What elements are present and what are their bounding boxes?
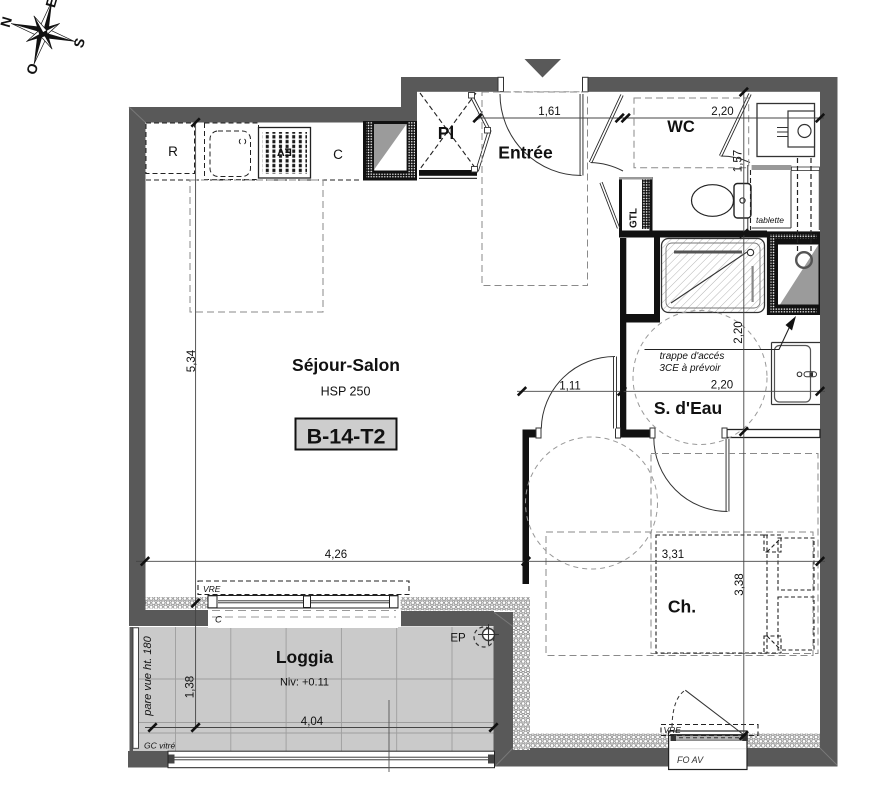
svg-text:VRE: VRE: [203, 584, 221, 594]
svg-text:FO AV: FO AV: [677, 755, 704, 765]
svg-text:4,04: 4,04: [301, 716, 324, 728]
svg-text:R: R: [168, 144, 178, 159]
svg-text:3,38: 3,38: [734, 573, 746, 595]
svg-text:2,20: 2,20: [711, 380, 733, 392]
svg-text:1,38: 1,38: [185, 676, 197, 698]
svg-text:2,20: 2,20: [711, 106, 733, 118]
svg-text:Ch.: Ch.: [668, 597, 696, 617]
svg-text:trappe d'accés: trappe d'accés: [660, 351, 725, 362]
svg-text:EV: EV: [277, 146, 292, 158]
svg-text:3CE à prévoir: 3CE à prévoir: [659, 363, 721, 374]
svg-text:WC: WC: [667, 118, 695, 136]
svg-text:Niv: +0.11: Niv: +0.11: [280, 677, 329, 689]
svg-text:HSP 250: HSP 250: [321, 385, 371, 399]
svg-text:Pl: Pl: [438, 123, 455, 143]
svg-text:GC vitré: GC vitré: [144, 741, 175, 751]
svg-text:1,11: 1,11: [559, 381, 581, 393]
svg-text:3,31: 3,31: [662, 549, 684, 561]
svg-text:C: C: [333, 147, 343, 162]
svg-text:2,20: 2,20: [733, 321, 745, 343]
svg-text:EP: EP: [450, 633, 466, 645]
svg-text:Séjour-Salon: Séjour-Salon: [292, 355, 400, 375]
svg-text:VRE: VRE: [664, 725, 682, 735]
svg-text:Loggia: Loggia: [276, 647, 334, 667]
svg-text:1,57: 1,57: [733, 150, 745, 172]
svg-text:Entrée: Entrée: [498, 143, 553, 163]
svg-text:4,26: 4,26: [325, 549, 347, 561]
svg-text:5,34: 5,34: [186, 349, 198, 372]
svg-text:C: C: [215, 615, 222, 626]
svg-text:S. d'Eau: S. d'Eau: [654, 398, 722, 418]
svg-text:GTL: GTL: [629, 208, 640, 228]
svg-text:tablette: tablette: [756, 215, 784, 225]
svg-text:pare vue ht. 180: pare vue ht. 180: [142, 635, 154, 716]
svg-text:B-14-T2: B-14-T2: [307, 425, 386, 449]
svg-text:1,61: 1,61: [538, 106, 560, 118]
